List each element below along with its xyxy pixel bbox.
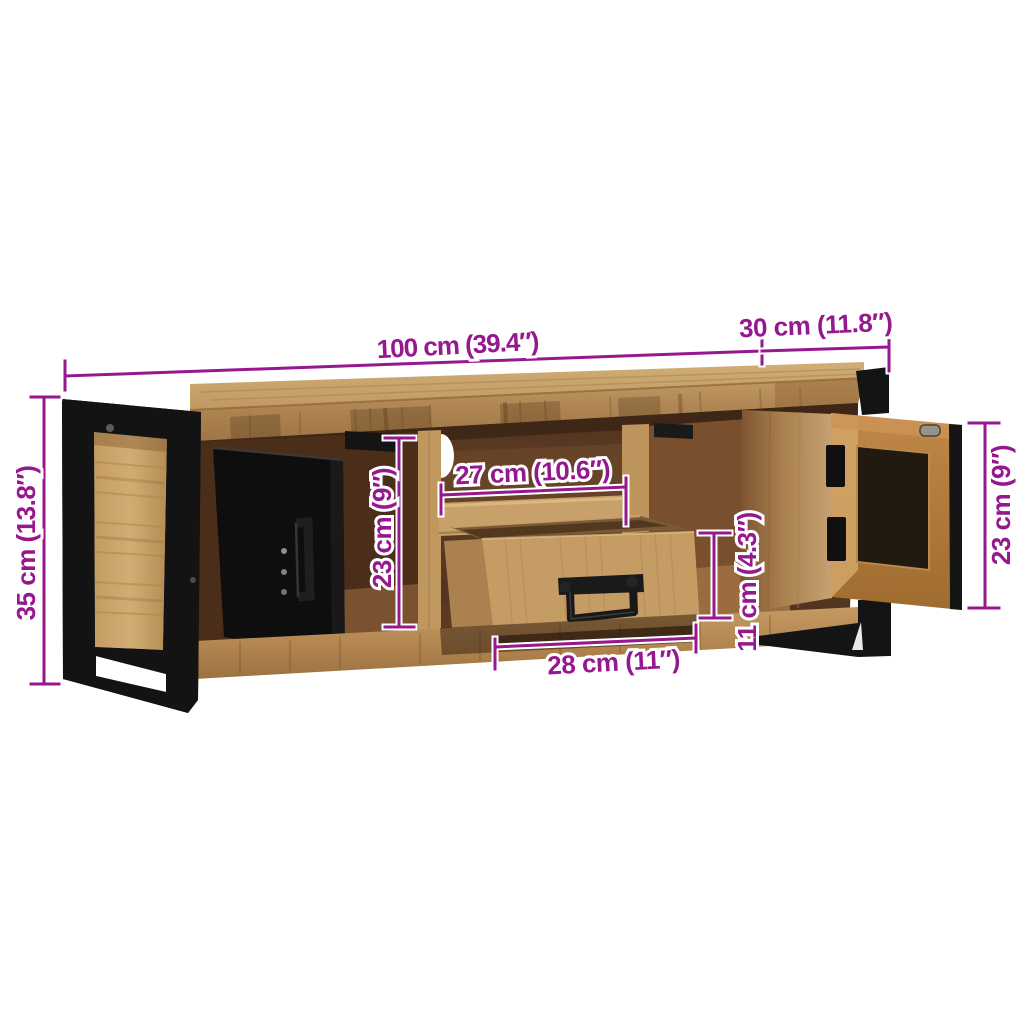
svg-text:23 cm (9″): 23 cm (9″) (367, 468, 397, 588)
svg-text:11 cm (4.3″): 11 cm (4.3″) (732, 512, 762, 651)
svg-text:23 cm (9″): 23 cm (9″) (986, 445, 1016, 565)
svg-text:35 cm (13.8″): 35 cm (13.8″) (11, 466, 41, 621)
